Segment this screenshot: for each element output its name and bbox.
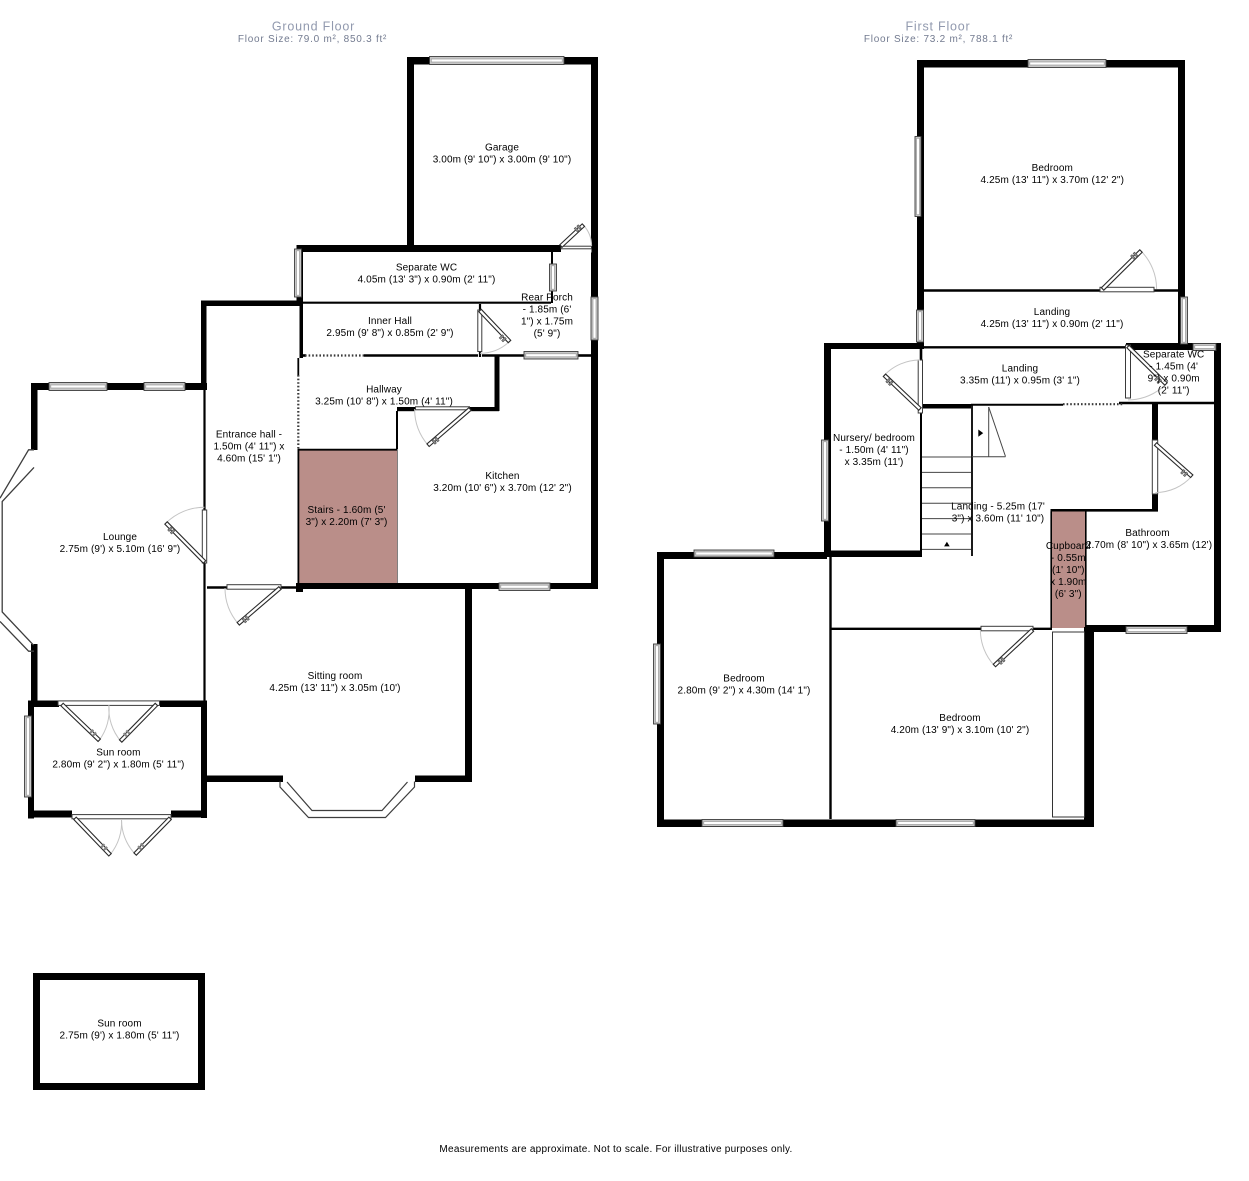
- svg-text:Stairs - 1.60m (5': Stairs - 1.60m (5': [308, 505, 386, 516]
- svg-text:4.05m (13' 3") x 0.90m (2' 11": 4.05m (13' 3") x 0.90m (2' 11"): [358, 275, 496, 286]
- svg-text:4.25m (13' 11") x 3.70m (12' 2: 4.25m (13' 11") x 3.70m (12' 2"): [981, 175, 1125, 186]
- svg-text:Floor Size: 79.0 m², 850.3 ft²: Floor Size: 79.0 m², 850.3 ft²: [238, 34, 387, 45]
- svg-text:Sitting room: Sitting room: [308, 671, 363, 682]
- svg-text:- 1.45m (4': - 1.45m (4': [1149, 362, 1198, 373]
- svg-text:Inner Hall: Inner Hall: [368, 316, 412, 327]
- svg-text:Ground Floor: Ground Floor: [272, 20, 355, 34]
- svg-text:Measurements are approximate.: Measurements are approximate. Not to sca…: [439, 1144, 792, 1155]
- svg-text:Kitchen: Kitchen: [485, 471, 519, 482]
- svg-text:3.00m (9' 10") x 3.00m (9' 10": 3.00m (9' 10") x 3.00m (9' 10"): [433, 154, 572, 165]
- svg-text:- 1.50m (4' 11"): - 1.50m (4' 11"): [839, 445, 908, 456]
- svg-text:Sun room: Sun room: [97, 1018, 141, 1029]
- svg-text:Sun room: Sun room: [96, 747, 140, 758]
- svg-text:4.20m (13' 9") x 3.10m (10' 2": 4.20m (13' 9") x 3.10m (10' 2"): [891, 725, 1030, 736]
- svg-text:Landing - 5.25m (17': Landing - 5.25m (17': [951, 502, 1045, 513]
- svg-text:Landing: Landing: [1002, 363, 1038, 374]
- svg-text:2.95m (9' 8") x 0.85m (2' 9"): 2.95m (9' 8") x 0.85m (2' 9"): [326, 328, 453, 339]
- svg-text:3") x 3.60m (11' 10"): 3") x 3.60m (11' 10"): [952, 514, 1045, 525]
- svg-text:- 1.85m (6': - 1.85m (6': [523, 304, 572, 315]
- svg-text:3.20m (10' 6") x 3.70m (12' 2": 3.20m (10' 6") x 3.70m (12' 2"): [433, 483, 572, 494]
- svg-text:4.25m (13' 11") x 0.90m (2' 11: 4.25m (13' 11") x 0.90m (2' 11"): [981, 319, 1124, 330]
- svg-text:- 0.55m: - 0.55m: [1051, 553, 1086, 564]
- svg-text:Bedroom: Bedroom: [1032, 163, 1073, 174]
- svg-text:Bathroom: Bathroom: [1125, 528, 1169, 539]
- svg-text:Bedroom: Bedroom: [939, 713, 980, 724]
- svg-text:Lounge: Lounge: [103, 532, 137, 543]
- svg-text:2.80m (9' 2") x 4.30m (14' 1"): 2.80m (9' 2") x 4.30m (14' 1"): [678, 686, 811, 697]
- svg-text:1.50m (4' 11") x: 1.50m (4' 11") x: [213, 441, 284, 452]
- svg-text:Hallway: Hallway: [366, 385, 402, 396]
- svg-text:Entrance hall -: Entrance hall -: [216, 429, 282, 440]
- svg-text:3.25m (10' 8") x 1.50m (4' 11": 3.25m (10' 8") x 1.50m (4' 11"): [315, 397, 453, 408]
- svg-text:2.70m (8' 10") x 3.65m (12'): 2.70m (8' 10") x 3.65m (12'): [1086, 540, 1212, 551]
- svg-text:3.35m (11') x 0.95m (3' 1"): 3.35m (11') x 0.95m (3' 1"): [960, 375, 1080, 386]
- svg-text:x 3.35m (11'): x 3.35m (11'): [845, 457, 904, 468]
- svg-text:2.75m (9') x 5.10m (16' 9"): 2.75m (9') x 5.10m (16' 9"): [60, 544, 181, 555]
- svg-text:4.25m (13' 11") x 3.05m (10'): 4.25m (13' 11") x 3.05m (10'): [269, 683, 400, 694]
- svg-text:9") x 0.90m: 9") x 0.90m: [1148, 374, 1200, 385]
- svg-text:2.75m (9') x 1.80m (5' 11"): 2.75m (9') x 1.80m (5' 11"): [60, 1030, 180, 1041]
- svg-text:(5' 9"): (5' 9"): [534, 328, 561, 339]
- svg-text:Landing: Landing: [1034, 307, 1070, 318]
- svg-text:Separate WC: Separate WC: [396, 263, 457, 274]
- svg-text:First Floor: First Floor: [905, 20, 970, 34]
- svg-text:(1' 10"): (1' 10"): [1052, 565, 1085, 576]
- svg-text:Cupboard: Cupboard: [1046, 541, 1091, 552]
- svg-text:(6' 3"): (6' 3"): [1055, 589, 1082, 600]
- svg-text:1") x 1.75m: 1") x 1.75m: [521, 316, 573, 327]
- svg-text:x 1.90m: x 1.90m: [1050, 577, 1086, 588]
- svg-text:Garage: Garage: [485, 142, 519, 153]
- svg-text:3") x 2.20m (7' 3"): 3") x 2.20m (7' 3"): [306, 517, 388, 528]
- svg-text:4.60m (15' 1"): 4.60m (15' 1"): [217, 453, 281, 464]
- svg-text:Separate WC: Separate WC: [1143, 350, 1204, 361]
- svg-text:Nursery/ bedroom: Nursery/ bedroom: [833, 433, 915, 444]
- svg-text:Rear Porch: Rear Porch: [521, 292, 573, 303]
- svg-text:Bedroom: Bedroom: [723, 674, 764, 685]
- svg-text:Floor Size: 73.2 m², 788.1 ft²: Floor Size: 73.2 m², 788.1 ft²: [864, 34, 1013, 45]
- svg-text:2.80m (9' 2") x 1.80m (5' 11"): 2.80m (9' 2") x 1.80m (5' 11"): [52, 759, 184, 770]
- svg-text:(2' 11"): (2' 11"): [1158, 386, 1190, 397]
